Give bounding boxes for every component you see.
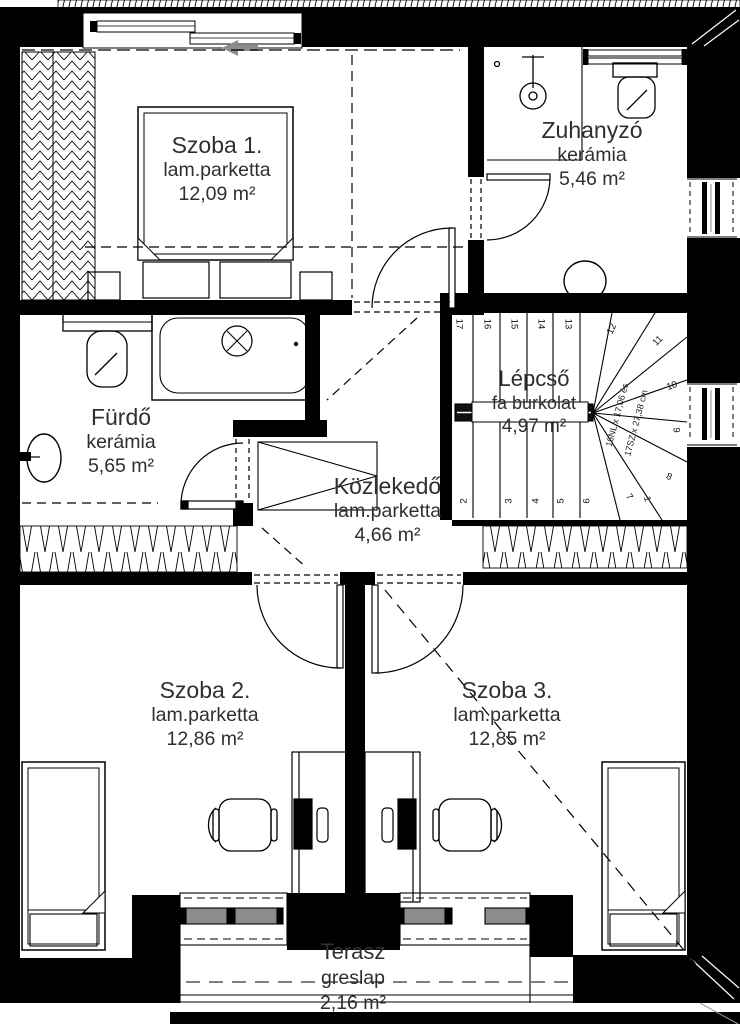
room-label-szoba1: Szoba 1. lam.parketta 12,09 m² <box>110 131 324 207</box>
room-material: fa burkolat <box>474 393 594 415</box>
room-area: 4,66 m² <box>305 524 470 548</box>
toilet-zuhanyzo <box>613 63 657 118</box>
desk-szoba3 <box>365 752 420 902</box>
room-material: lam.parketta <box>305 500 470 524</box>
room-label-furdo: Fürdő kerámia 5,65 m² <box>35 403 207 479</box>
floor-plan-page: Szoba 1. lam.parketta 12,09 m² Zuhanyzó … <box>0 0 740 1024</box>
door-szoba3 <box>372 575 463 673</box>
room-name: Fürdő <box>35 403 207 431</box>
stair-step-number: 6 <box>582 498 593 503</box>
room-name: Közlekedő <box>305 472 470 500</box>
terrace-door-left <box>180 893 287 945</box>
bed-szoba3 <box>602 762 685 950</box>
room-area: 5,46 m² <box>497 168 687 192</box>
room-material: lam.parketta <box>412 704 602 728</box>
stair-step-number: 3 <box>504 498 515 503</box>
wardrobe <box>22 52 95 300</box>
room-material: lam.parketta <box>110 704 300 728</box>
stair-step-number: 4 <box>531 498 542 503</box>
room-label-szoba2: Szoba 2. lam.parketta 12,86 m² <box>110 676 300 752</box>
desk-szoba2 <box>292 752 347 902</box>
window-right-upper <box>687 178 737 238</box>
room-area: 12,85 m² <box>412 728 602 752</box>
bathtub <box>152 311 317 400</box>
stair-step-number: 9 <box>671 427 682 432</box>
monitor-icon <box>294 799 312 849</box>
door-szoba1 <box>354 228 455 312</box>
stair-step-number: 2 <box>459 498 470 503</box>
bed-szoba2 <box>22 762 105 950</box>
stair-step-number: 13 <box>563 319 574 330</box>
keyboard-icon <box>382 808 393 842</box>
room-name: Terasz <box>272 938 434 966</box>
room-name: Szoba 3. <box>412 676 602 704</box>
room-label-lepcso: Lépcső fa burkolat 4,97 m² <box>474 366 594 438</box>
door-szoba2 <box>254 575 343 668</box>
stair-step-number: 17 <box>454 319 465 330</box>
room-material: lam.parketta <box>110 159 324 183</box>
stair-step-number: 16 <box>482 319 493 330</box>
room-material: kerámia <box>35 431 207 455</box>
window-right-lower <box>687 383 737 447</box>
room-area: 12,86 m² <box>110 728 300 752</box>
room-material: greslap <box>272 966 434 991</box>
room-label-kozlekedo: Közlekedő lam.parketta 4,66 m² <box>305 472 470 548</box>
room-material: kerámia <box>497 144 687 168</box>
room-area: 5,65 m² <box>35 455 207 479</box>
room-area: 4,97 m² <box>474 415 594 438</box>
stair-step-number: 15 <box>509 319 520 330</box>
keyboard-icon <box>317 808 328 842</box>
room-label-zuhanyzo: Zuhanyzó kerámia 5,46 m² <box>497 116 687 192</box>
room-name: Szoba 1. <box>110 131 324 159</box>
stair-step-number: 5 <box>556 498 567 503</box>
office-chair-szoba3 <box>433 799 502 851</box>
room-area: 2,16 m² <box>272 991 434 1016</box>
room-name: Szoba 2. <box>110 676 300 704</box>
room-area: 12,09 m² <box>110 183 324 207</box>
room-label-szoba3: Szoba 3. lam.parketta 12,85 m² <box>412 676 602 752</box>
stair-step-number: 14 <box>536 319 547 330</box>
room-label-terasz: Terasz greslap 2,16 m² <box>272 938 434 1016</box>
room-name: Zuhanyzó <box>497 116 687 144</box>
room-name: Lépcső <box>474 366 594 393</box>
monitor-icon <box>398 799 416 849</box>
toilet-furdo <box>63 313 152 387</box>
office-chair-szoba2 <box>209 799 278 851</box>
